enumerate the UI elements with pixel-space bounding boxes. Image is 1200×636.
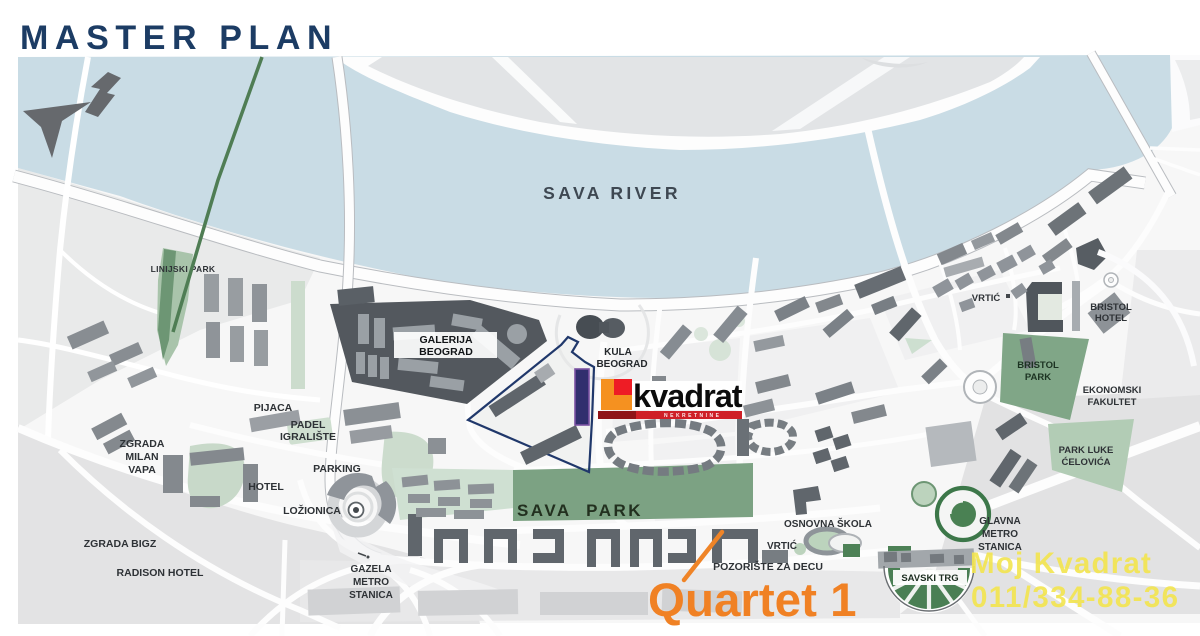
svg-text:Moj Kvadrat: Moj Kvadrat: [970, 547, 1152, 580]
svg-text:VRTIĆ: VRTIĆ: [767, 539, 797, 552]
svg-text:METRO: METRO: [982, 529, 1018, 540]
svg-text:POZORIŠTE ZA DECU: POZORIŠTE ZA DECU: [713, 560, 823, 573]
svg-text:VRTIĆ: VRTIĆ: [972, 292, 1001, 304]
svg-text:HOTEL: HOTEL: [248, 481, 284, 493]
svg-text:SAVA PARK: SAVA PARK: [517, 501, 643, 520]
svg-text:GAZELA: GAZELA: [350, 564, 391, 575]
svg-text:SAVA RIVER: SAVA RIVER: [543, 183, 681, 203]
svg-text:BRISTOL: BRISTOL: [1017, 360, 1059, 371]
svg-text:ZGRADA BIGZ: ZGRADA BIGZ: [84, 538, 157, 550]
svg-text:MASTER PLAN: MASTER PLAN: [20, 19, 338, 57]
svg-text:011/334-88-36: 011/334-88-36: [971, 581, 1179, 614]
svg-text:STANICA: STANICA: [349, 590, 393, 601]
svg-text:ZGRADA: ZGRADA: [120, 438, 165, 450]
svg-text:kvadrat: kvadrat: [633, 378, 743, 414]
svg-text:IGRALIŠTE: IGRALIŠTE: [280, 430, 336, 443]
svg-text:EKONOMSKI: EKONOMSKI: [1083, 385, 1142, 396]
svg-text:BEOGRAD: BEOGRAD: [419, 346, 473, 358]
svg-text:MILAN: MILAN: [125, 451, 158, 463]
svg-text:PARKING: PARKING: [313, 463, 361, 475]
svg-text:SAVSKI TRG: SAVSKI TRG: [901, 573, 958, 584]
svg-text:LINIJSKI PARK: LINIJSKI PARK: [151, 264, 216, 274]
svg-text:GALERIJA: GALERIJA: [419, 334, 473, 346]
svg-text:KULA: KULA: [604, 347, 632, 358]
svg-text:LOŽIONICA: LOŽIONICA: [283, 504, 341, 517]
svg-text:PADEL: PADEL: [291, 419, 326, 431]
svg-text:ĆELOVIĆA: ĆELOVIĆA: [1061, 456, 1110, 468]
svg-text:PIJACA: PIJACA: [254, 402, 293, 414]
svg-text:HOTEL: HOTEL: [1095, 313, 1127, 324]
svg-text:METRO: METRO: [353, 577, 389, 588]
svg-text:PARK LUKE: PARK LUKE: [1059, 445, 1114, 456]
svg-text:BEOGRAD: BEOGRAD: [596, 359, 647, 370]
svg-text:GLAVNA: GLAVNA: [979, 516, 1020, 527]
svg-text:Quartet 1: Quartet 1: [648, 574, 857, 627]
svg-text:NEKRETNINE: NEKRETNINE: [664, 413, 722, 419]
svg-text:RADISON HOTEL: RADISON HOTEL: [117, 567, 205, 579]
svg-text:BRISTOL: BRISTOL: [1090, 302, 1132, 313]
svg-text:PARK: PARK: [1025, 372, 1051, 383]
svg-text:FAKULTET: FAKULTET: [1088, 397, 1137, 408]
svg-text:VAPA: VAPA: [128, 464, 156, 476]
svg-text:OSNOVNA ŠKOLA: OSNOVNA ŠKOLA: [784, 517, 872, 530]
